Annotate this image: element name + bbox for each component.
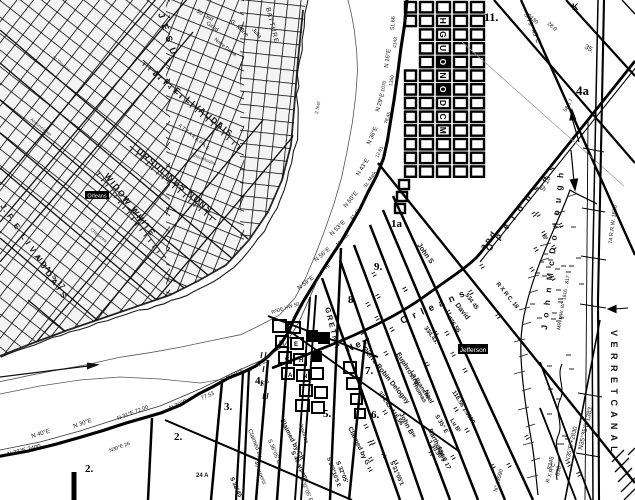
svg-text:3.: 3. xyxy=(224,401,233,413)
svg-text:M: M xyxy=(438,127,448,134)
svg-text:4a: 4a xyxy=(576,83,590,98)
svg-text:M: M xyxy=(279,341,284,347)
svg-text:O: O xyxy=(438,86,448,93)
svg-text:V E R R E T C A N A L: V E R R E T C A N A L xyxy=(609,330,619,453)
svg-text:Orleans: Orleans xyxy=(87,194,107,200)
svg-text:2.: 2. xyxy=(85,463,94,475)
svg-text:11.: 11. xyxy=(484,10,498,24)
svg-text:1a: 1a xyxy=(391,218,403,230)
svg-text:24 A: 24 A xyxy=(196,473,209,479)
svg-text:G: G xyxy=(438,31,448,38)
svg-text:U: U xyxy=(438,45,448,51)
svg-text:H: H xyxy=(438,18,448,24)
svg-text:A: A xyxy=(288,373,293,379)
svg-text:6.: 6. xyxy=(371,409,380,421)
svg-text:7.: 7. xyxy=(365,365,374,377)
svg-text:4143: 4143 xyxy=(392,37,399,49)
svg-text:N: N xyxy=(303,374,307,380)
svg-text:2.: 2. xyxy=(174,431,183,443)
svg-text:9.: 9. xyxy=(374,261,383,273)
svg-text:5.: 5. xyxy=(323,408,332,420)
svg-text:H: H xyxy=(299,358,303,364)
svg-text:E: E xyxy=(294,342,298,348)
svg-text:51.66: 51.66 xyxy=(390,16,397,30)
svg-text:K: K xyxy=(572,2,579,12)
svg-text:O: O xyxy=(438,58,448,65)
svg-text:C: C xyxy=(438,114,448,120)
svg-text:Jefferson: Jefferson xyxy=(460,347,487,354)
svg-text:8.: 8. xyxy=(348,294,357,306)
svg-text:N: N xyxy=(438,72,448,78)
svg-text:C: C xyxy=(285,357,290,363)
svg-text:D: D xyxy=(438,100,448,106)
